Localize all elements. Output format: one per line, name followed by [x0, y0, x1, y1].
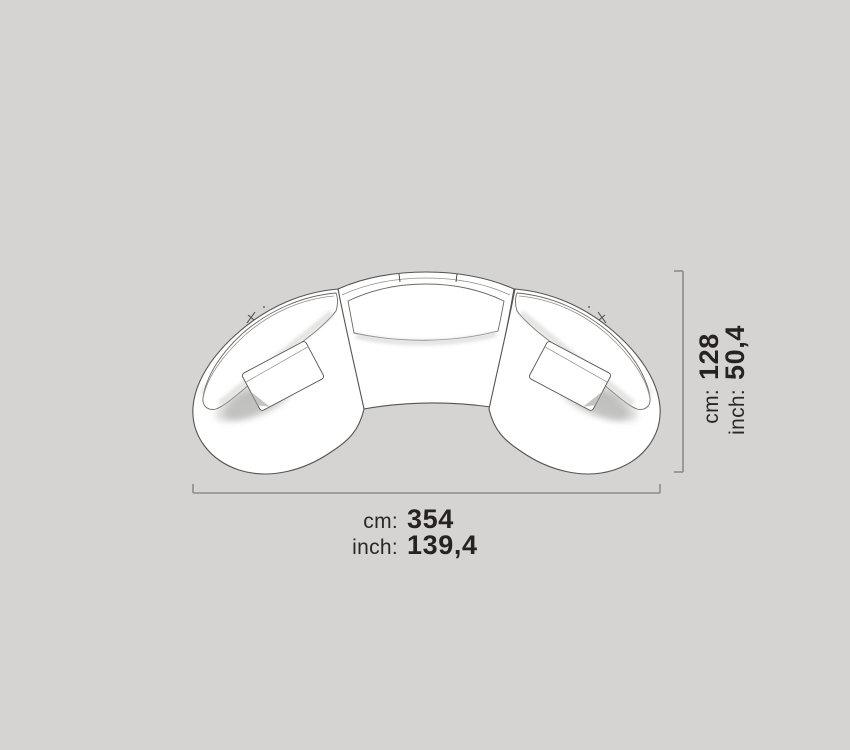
width-dimension-label: cm:354 inch:139,4: [286, 506, 478, 558]
width-inch-row: inch:139,4: [286, 532, 478, 558]
height-cm-value: 128: [696, 333, 722, 380]
width-dimension-line: [193, 484, 660, 493]
sofa-left-module: [193, 289, 364, 474]
dimension-diagram: cm:354 inch:139,4 cm:128 inch:50,4: [0, 0, 850, 750]
sofa-right-module: [489, 289, 660, 474]
width-cm-value: 354: [407, 506, 454, 532]
height-inch-value: 50,4: [722, 325, 748, 380]
width-inch-value: 139,4: [407, 532, 478, 558]
width-inch-unit: inch:: [286, 535, 398, 561]
height-cm-row: cm:128: [696, 325, 722, 447]
width-cm-row: cm:354: [286, 506, 478, 532]
height-inch-unit: inch:: [725, 389, 751, 447]
height-inch-row: inch:50,4: [722, 325, 748, 447]
height-dimension-line: [674, 271, 683, 472]
height-dimension-label: cm:128 inch:50,4: [696, 325, 748, 447]
sofa-center-module: [338, 272, 514, 409]
